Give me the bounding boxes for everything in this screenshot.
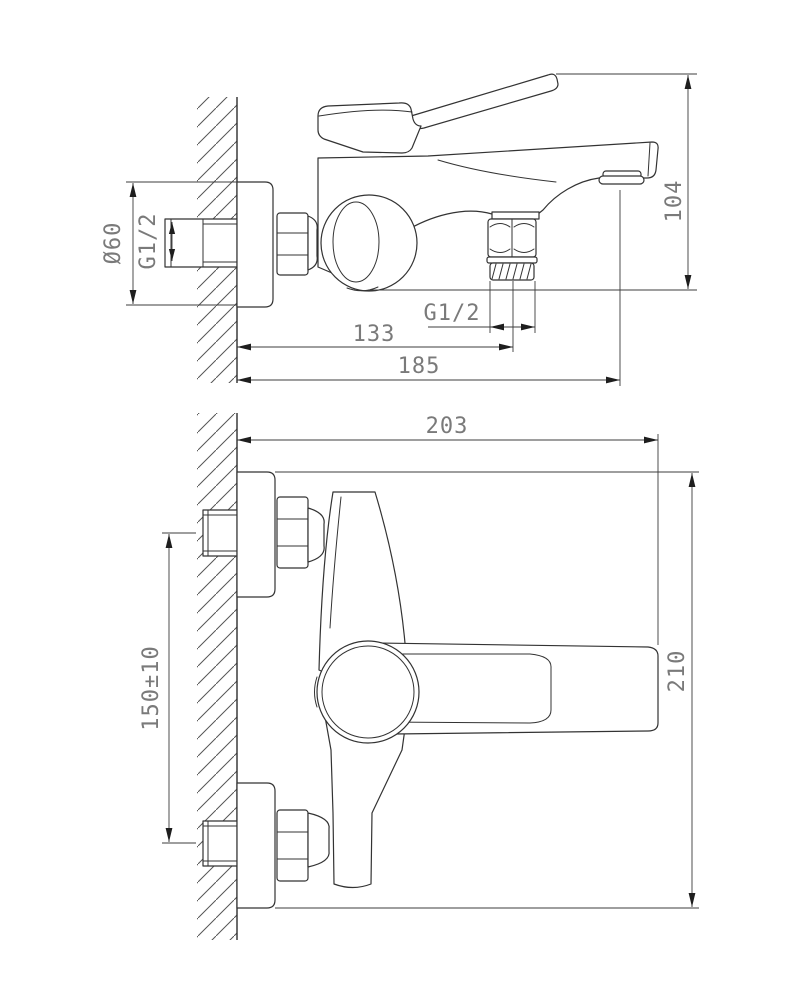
supply-pipe-upper (203, 510, 237, 556)
cartridge-dome (321, 195, 417, 291)
hex-nut (277, 213, 308, 275)
hex-nut-upper (277, 497, 308, 568)
hex-nut-lower (277, 810, 308, 881)
technical-drawing-page: Ø60 G1/2 104 G1/2 133 185 (0, 0, 800, 1000)
shower-outlet (487, 212, 539, 280)
eccentric-ball-lower (308, 813, 329, 867)
dimension-label-185: 185 (398, 354, 441, 379)
dimension-label-203: 203 (426, 414, 469, 439)
supply-pipe (165, 219, 237, 267)
side-view: Ø60 G1/2 104 G1/2 133 185 (101, 74, 697, 386)
handle-cap-side (318, 103, 421, 153)
aerator (599, 171, 644, 184)
front-view: 203 210 150±10 (139, 413, 699, 940)
escutcheon-flange-upper (237, 472, 275, 597)
dimension-label-flange-diameter: Ø60 (101, 222, 126, 265)
dimension-inlet-spacing: 150±10 (139, 533, 196, 843)
eccentric-ball-upper (308, 508, 324, 562)
faucet-technical-drawing: Ø60 G1/2 104 G1/2 133 185 (0, 0, 800, 1000)
dimension-label-150: 150±10 (139, 645, 164, 730)
dimension-label-outlet-thread: G1/2 (424, 301, 481, 326)
escutcheon-flange (237, 182, 273, 307)
dimension-wall-to-outlet: 133 (237, 322, 513, 350)
dimension-outlet-thread: G1/2 (424, 281, 535, 352)
handle-lever-side (411, 74, 558, 128)
dimension-label-height-104: 104 (662, 180, 687, 223)
eccentric-ball (308, 216, 317, 270)
dimension-label-133: 133 (353, 322, 396, 347)
supply-pipe-lower (203, 821, 237, 866)
escutcheon-flange-lower (237, 783, 275, 908)
dimension-label-wall-thread: G1/2 (136, 213, 161, 270)
dimension-label-210: 210 (665, 650, 690, 693)
